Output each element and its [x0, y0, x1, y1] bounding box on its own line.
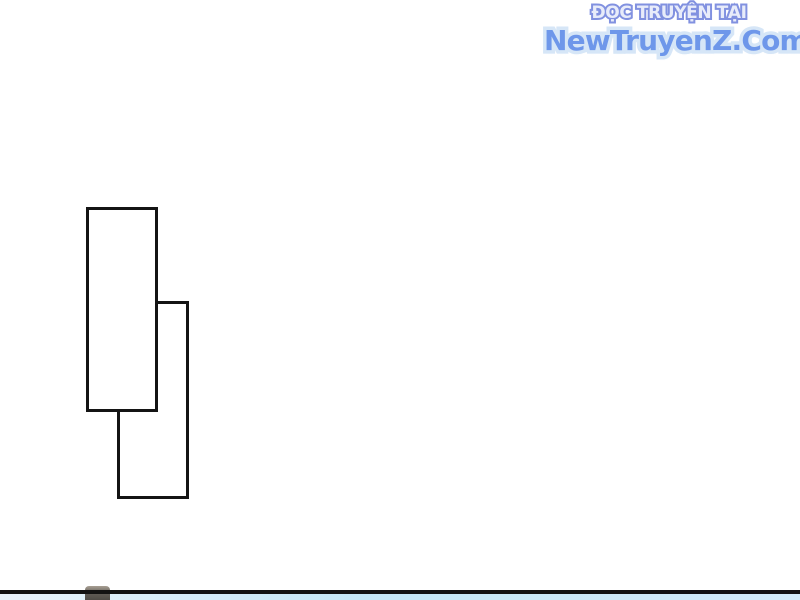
watermark-sitename: NewTruyenZ.Com NewTruyenZ.Com: [544, 25, 794, 56]
next-panel-sky: [0, 594, 800, 600]
panel-artwork: [0, 0, 800, 600]
next-panel-border-line: [0, 590, 800, 594]
watermark-tagline-text: ĐỌC TRUYỆN TẠI: [544, 4, 794, 23]
front-rectangle: [86, 207, 158, 412]
comic-page: ĐỌC TRUYỆN TẠI ĐỌC TRUYỆN TẠI NewTruyenZ…: [0, 0, 800, 600]
site-watermark: ĐỌC TRUYỆN TẠI ĐỌC TRUYỆN TẠI NewTruyenZ…: [544, 4, 794, 56]
watermark-sitename-text: NewTruyenZ.Com: [544, 25, 794, 56]
watermark-tagline: ĐỌC TRUYỆN TẠI ĐỌC TRUYỆN TẠI: [544, 4, 794, 23]
